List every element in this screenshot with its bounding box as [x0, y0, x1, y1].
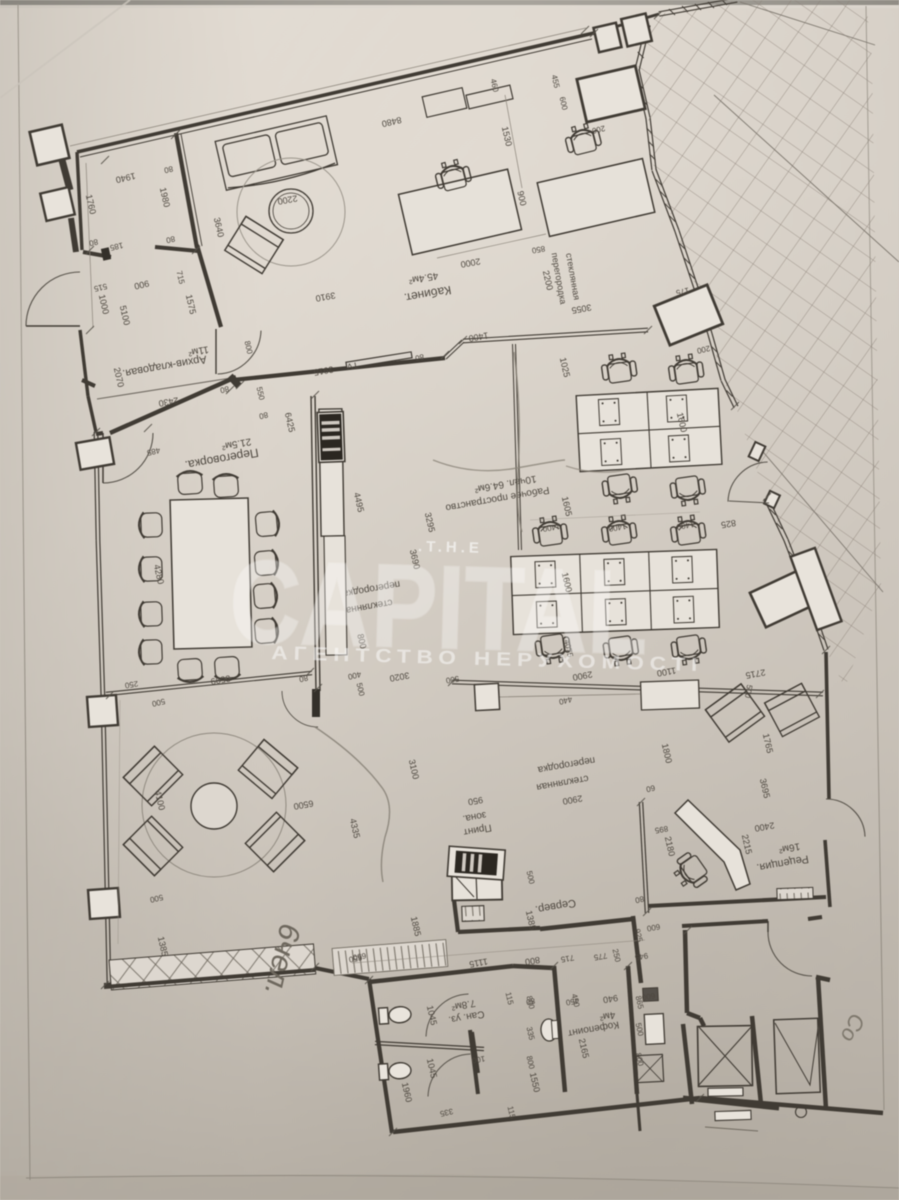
- svg-text:ТV: ТV: [346, 360, 359, 372]
